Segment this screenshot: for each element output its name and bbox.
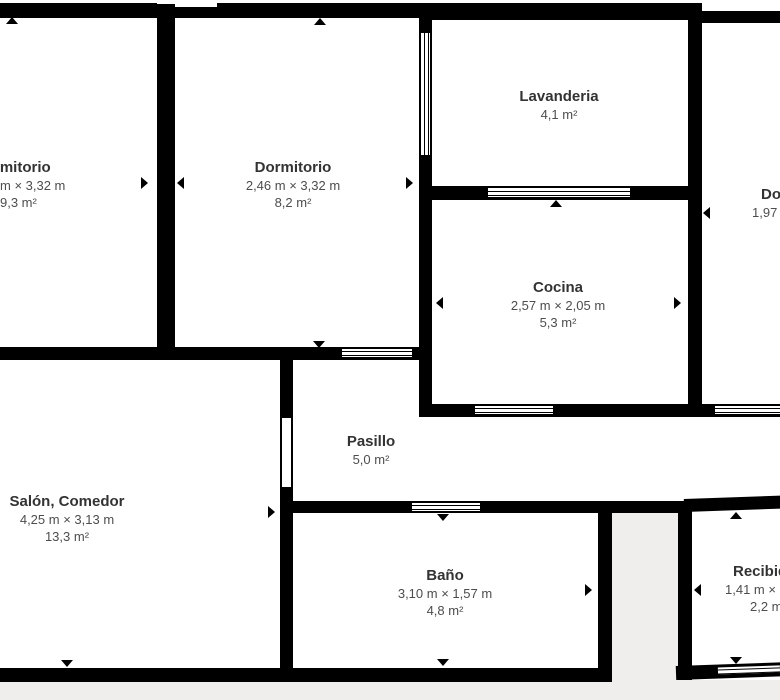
- room-area-value: 5,0 m²: [291, 451, 451, 468]
- door-direction-marker-left-icon: [694, 584, 701, 596]
- door-direction-marker-right-icon: [406, 177, 413, 189]
- window-glass-lines: [424, 33, 429, 155]
- room-name: Dormitorio: [761, 185, 780, 204]
- room-label-dormitorio-left: Dormitorio m × 3,32 m 9,3 m²: [0, 158, 144, 211]
- room-dimensions: 1,41 m × 1,: [725, 581, 780, 598]
- wall: [217, 3, 431, 18]
- room-name: Baño: [365, 566, 525, 585]
- wall: [692, 11, 780, 23]
- door-direction-marker-up-icon: [6, 17, 18, 24]
- window-glass-lines: [342, 351, 412, 356]
- room-area-value: 4,8 m²: [365, 602, 525, 619]
- room-dimensions: m × 3,32 m: [0, 177, 144, 194]
- room-dimensions: 4,25 m × 3,13 m: [0, 511, 147, 528]
- door-direction-marker-right-icon: [268, 506, 275, 518]
- room-name: Cocina: [478, 278, 638, 297]
- wall: [280, 347, 293, 682]
- window: [412, 503, 480, 511]
- room-label-bano: Baño 3,10 m × 1,57 m 4,8 m²: [365, 566, 525, 619]
- door-direction-marker-down-icon: [313, 341, 325, 348]
- room-dimensions: 2,46 m × 3,32 m: [213, 177, 373, 194]
- door-direction-marker-left-icon: [703, 207, 710, 219]
- room-area-value: 2,2 m²: [750, 598, 780, 615]
- room-dimensions: 3,10 m × 1,57 m: [365, 585, 525, 602]
- room-name: Salón, Comedor: [0, 492, 147, 511]
- window-glass-lines: [715, 408, 780, 413]
- room-label-pasillo: Pasillo 5,0 m²: [291, 432, 451, 468]
- room-label-recibidor: Recibidor 1,41 m × 1, 2,2 m²: [725, 562, 780, 615]
- room-dimensions: 1,97: [752, 204, 780, 221]
- door-direction-marker-down-icon: [61, 660, 73, 667]
- room-label-salon-comedor: Salón, Comedor 4,25 m × 3,13 m 13,3 m²: [0, 492, 147, 545]
- wall: [419, 3, 702, 20]
- window-glass-lines: [718, 667, 780, 674]
- room-label-lavanderia: Lavanderia 4,1 m²: [479, 87, 639, 123]
- door-direction-marker-right-icon: [674, 297, 681, 309]
- window: [718, 665, 780, 674]
- room-label-dormitorio-right: Dormitorio 1,97: [752, 185, 780, 221]
- room-name: Pasillo: [291, 432, 451, 451]
- room-name: Dormitorio: [0, 158, 144, 177]
- room-label-cocina: Cocina 2,57 m × 2,05 m 5,3 m²: [478, 278, 638, 331]
- room-area-value: 13,3 m²: [0, 528, 147, 545]
- floor-plan: Dormitorio m × 3,32 m 9,3 m² Dormitorio …: [0, 0, 780, 700]
- door-direction-marker-right-icon: [585, 584, 592, 596]
- room-dimensions: 2,57 m × 2,05 m: [478, 297, 638, 314]
- wall: [157, 4, 175, 349]
- wall: [0, 3, 157, 18]
- wall: [0, 668, 612, 682]
- window-glass-lines: [412, 505, 480, 510]
- door-direction-marker-left-icon: [436, 297, 443, 309]
- room-name: Dormitorio: [213, 158, 373, 177]
- wall: [684, 496, 780, 512]
- exterior-lightwell-notch: [612, 513, 678, 700]
- room-name: Recibidor: [733, 562, 780, 581]
- door-direction-marker-up-icon: [730, 512, 742, 519]
- window: [715, 406, 780, 414]
- window: [488, 188, 630, 197]
- door-direction-marker-down-icon: [437, 514, 449, 521]
- window: [421, 33, 430, 155]
- window-glass-lines: [488, 191, 630, 196]
- room-name: Lavanderia: [479, 87, 639, 106]
- window-glass-lines: [475, 408, 553, 413]
- room-area-value: 4,1 m²: [479, 106, 639, 123]
- room-label-dormitorio-center: Dormitorio 2,46 m × 3,32 m 8,2 m²: [213, 158, 373, 211]
- door-direction-marker-up-icon: [314, 18, 326, 25]
- window: [342, 349, 412, 357]
- wall: [598, 501, 612, 682]
- door-direction-marker-down-icon: [730, 657, 742, 664]
- room-area-value: 8,2 m²: [213, 194, 373, 211]
- door-direction-marker-up-icon: [550, 200, 562, 207]
- window: [475, 406, 553, 414]
- door-direction-marker-down-icon: [437, 659, 449, 666]
- door-direction-marker-left-icon: [177, 177, 184, 189]
- room-area-value: 5,3 m²: [478, 314, 638, 331]
- room-area-value: 9,3 m²: [0, 194, 144, 211]
- wall: [678, 505, 692, 680]
- wall: [688, 3, 702, 417]
- wall: [280, 501, 692, 513]
